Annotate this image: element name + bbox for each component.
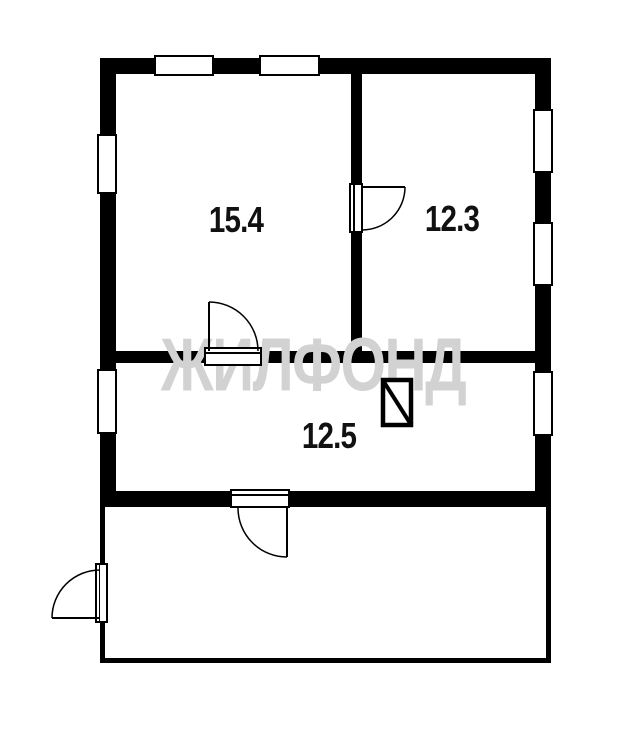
door-rooms-top xyxy=(362,187,405,230)
stove-icon xyxy=(383,380,411,425)
door-porch-entry xyxy=(52,570,100,618)
door-inner xyxy=(209,302,258,351)
floor-plan: ЖИЛФОНД xyxy=(0,0,625,738)
room-area-label: 15.4 xyxy=(187,202,285,238)
room-area-label: 12.3 xyxy=(403,201,501,237)
room-area-label: 12.5 xyxy=(280,418,378,454)
plan-symbols-layer xyxy=(0,0,625,738)
door-to-porch xyxy=(238,508,287,557)
